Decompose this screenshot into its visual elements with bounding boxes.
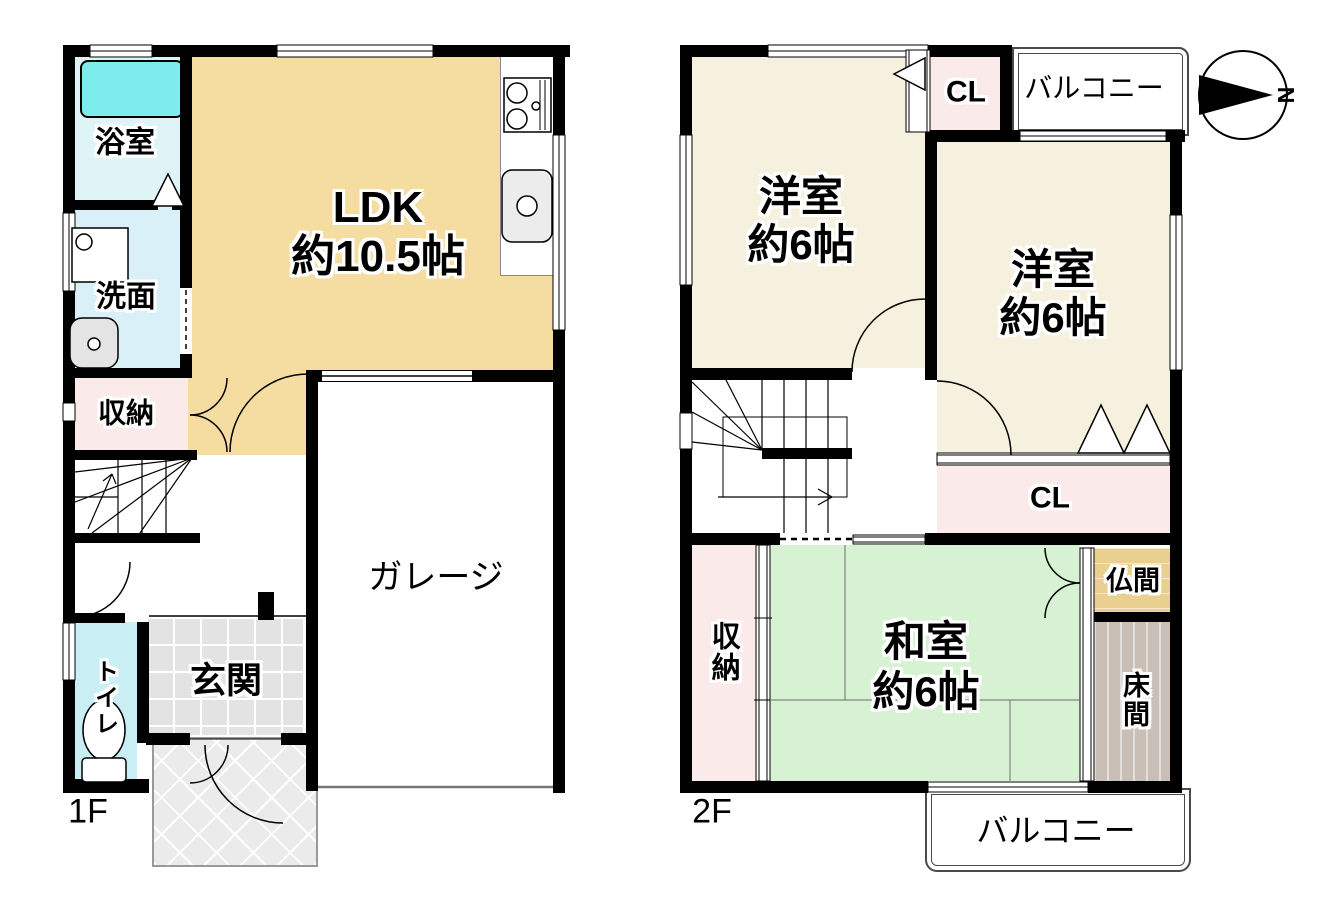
label-toilet: トイレ	[91, 659, 116, 737]
label-garage: ガレージ	[368, 560, 503, 595]
label-western1-size: 約6帖	[747, 223, 854, 267]
label-japanese-size: 約6帖	[872, 670, 979, 714]
label-storage-2f: 収納	[708, 621, 738, 683]
label-butsuma: 仏間	[1106, 567, 1160, 595]
kitchen-counter	[500, 52, 555, 276]
north-label: N	[1273, 87, 1297, 104]
floor-plan: 浴室 洗面 収納 LDK 約10.5帖 ガレージ トイレ 玄関 1F CL バル…	[0, 0, 1338, 909]
label-japanese: 和室	[884, 620, 968, 664]
stairs-2f	[692, 380, 847, 533]
label-western2: 洋室	[1011, 248, 1095, 292]
label-balcony-bottom: バルコニー	[976, 814, 1135, 847]
bathtub	[80, 60, 184, 118]
entrance-porch	[152, 737, 318, 867]
label-closet-top: CL	[946, 76, 986, 107]
label-floor-1f: 1F	[68, 794, 108, 829]
label-closet-mid: CL	[1030, 482, 1070, 513]
room-ldk-lower	[188, 373, 306, 455]
label-storage-1f: 収納	[98, 398, 154, 427]
north-arrow-icon	[1199, 75, 1273, 115]
label-floor-2f: 2F	[692, 794, 732, 829]
label-tokonoma: 床間	[1120, 671, 1148, 729]
label-balcony-top: バルコニー	[1024, 73, 1163, 102]
label-washroom: 洗面	[96, 281, 156, 312]
label-ldk: LDK	[333, 185, 423, 231]
label-bath: 浴室	[95, 127, 155, 158]
label-ldk-size: 約10.5帖	[291, 234, 465, 280]
label-western1: 洋室	[759, 175, 843, 219]
label-western2-size: 約6帖	[999, 296, 1106, 340]
label-entrance: 玄関	[190, 661, 262, 698]
stairs-1f	[75, 455, 192, 533]
